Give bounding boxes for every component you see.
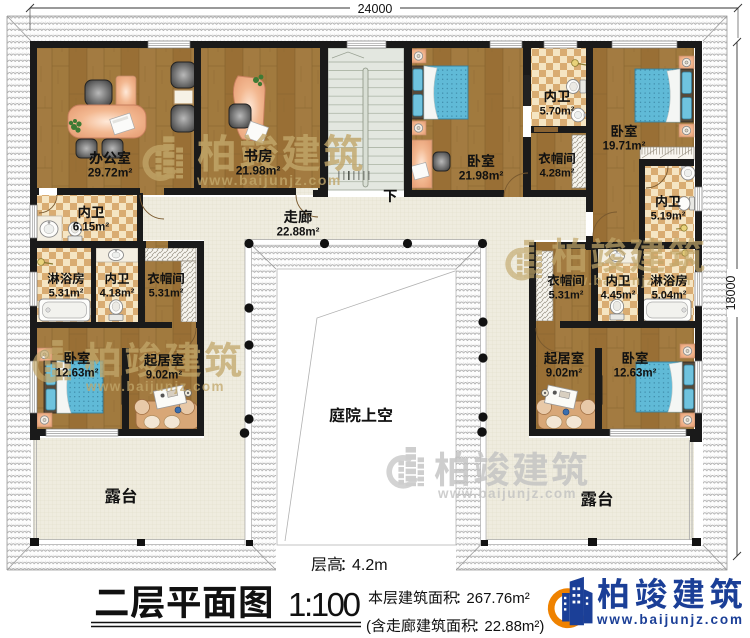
svg-text:5.04m²: 5.04m²	[652, 290, 687, 302]
svg-text:1:100: 1:100	[288, 586, 361, 623]
svg-text:12.63m²: 12.63m²	[56, 368, 99, 380]
svg-text:4.45m²: 4.45m²	[601, 290, 636, 302]
svg-text:267.76m²: 267.76m²	[466, 590, 529, 607]
svg-text:www.baijunjz.com: www.baijunjz.com	[596, 612, 744, 627]
svg-text:9.02m²: 9.02m²	[546, 368, 583, 380]
svg-text:12.63m²: 12.63m²	[614, 368, 657, 380]
svg-text:4.28m²: 4.28m²	[540, 168, 575, 180]
svg-text:4.2m: 4.2m	[352, 557, 388, 574]
svg-text:4.18m²: 4.18m²	[100, 288, 135, 300]
svg-text:21.98m²: 21.98m²	[236, 164, 281, 178]
svg-text:21.98m²: 21.98m²	[459, 169, 504, 183]
svg-text:www.baijunjz.com: www.baijunjz.com	[437, 486, 577, 501]
svg-text:5.31m²: 5.31m²	[49, 288, 84, 300]
svg-text:5.31m²: 5.31m²	[549, 290, 584, 302]
svg-text:6.15m²: 6.15m²	[73, 222, 110, 234]
svg-text:5.70m²: 5.70m²	[540, 106, 575, 118]
svg-text:29.72m²: 29.72m²	[88, 166, 133, 180]
svg-text:5.19m²: 5.19m²	[651, 211, 686, 223]
svg-text:22.88m²): 22.88m²)	[484, 618, 544, 635]
svg-text:19.71m²: 19.71m²	[603, 141, 646, 153]
svg-text:(: (	[366, 618, 371, 635]
svg-text:22.88m²: 22.88m²	[277, 227, 320, 239]
svg-text:18000: 18000	[724, 276, 738, 311]
svg-text:24000: 24000	[358, 2, 393, 16]
svg-text:5.31m²: 5.31m²	[149, 288, 184, 300]
svg-text:9.02m²: 9.02m²	[146, 370, 183, 382]
